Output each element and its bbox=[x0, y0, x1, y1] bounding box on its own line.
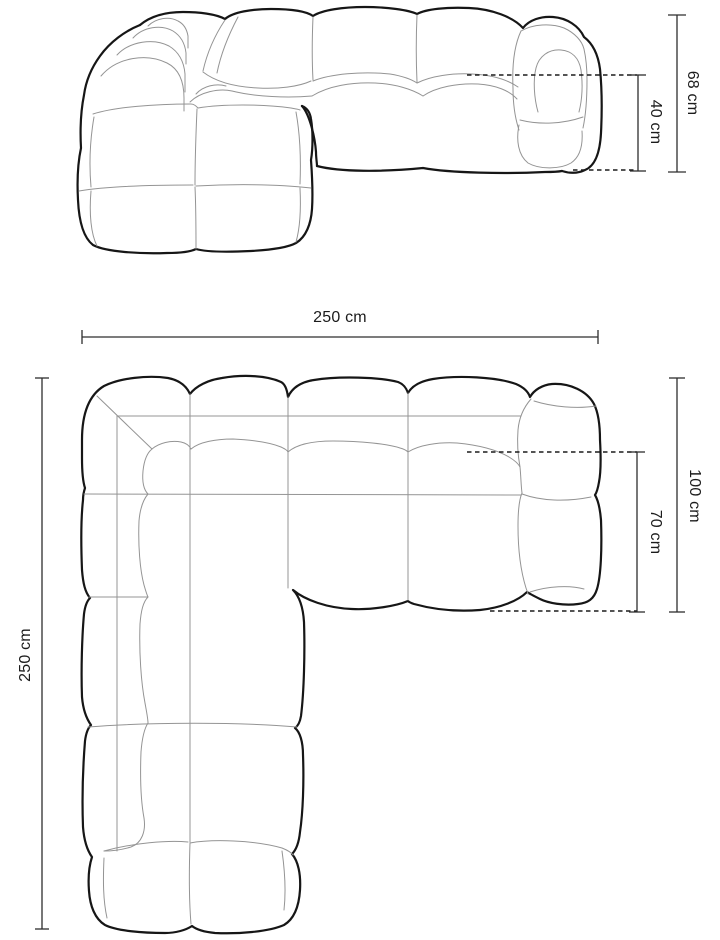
dimension-label-width: 250 cm bbox=[313, 309, 367, 326]
corner-cushion-arc bbox=[133, 27, 186, 64]
left-cushion-front-seam bbox=[143, 449, 152, 494]
armrest-waist-seam bbox=[522, 494, 591, 500]
end-module-top-seam bbox=[190, 841, 293, 855]
armrest-waist-seam bbox=[520, 117, 583, 123]
sofa-dimension-diagram: 68 cm 40 cm bbox=[0, 0, 720, 940]
dimension-label-right-section-depth: 100 cm bbox=[686, 469, 703, 523]
sofa-left-silhouette-and-front-module bbox=[78, 25, 313, 253]
front-view-drawing bbox=[78, 7, 602, 253]
corner-cushion-arc bbox=[101, 58, 184, 111]
back-cushion-front-seam bbox=[408, 443, 520, 467]
corner-module-join-seam bbox=[217, 17, 238, 73]
sofa-back-and-arm-outline bbox=[140, 7, 602, 173]
armrest-bottom-seam bbox=[530, 587, 584, 592]
corner-module-join-seam bbox=[203, 20, 225, 71]
armrest-inner-edge bbox=[520, 467, 522, 493]
front-module-side-seam bbox=[90, 191, 97, 246]
front-module-side-seam bbox=[90, 117, 94, 187]
back-module-seam bbox=[312, 17, 313, 80]
left-cushion-front-seam bbox=[104, 723, 148, 851]
left-cushion-front-seam bbox=[139, 494, 148, 597]
seat-cushion-top-seam bbox=[312, 83, 423, 96]
plan-view-dimensions: 250 cm 250 cm 100 cm 70 cm bbox=[17, 309, 703, 929]
front-module-center-seam bbox=[195, 109, 197, 185]
corner-cushion-arc bbox=[117, 42, 185, 92]
corner-seat-cushion-arc bbox=[196, 85, 226, 94]
sofa-plan-outline bbox=[81, 376, 601, 933]
front-module-top-seam bbox=[93, 104, 198, 114]
armrest-inner-seam bbox=[513, 31, 521, 130]
front-module-side-seam bbox=[296, 188, 300, 242]
sofa-seat-front-edge bbox=[317, 166, 562, 173]
armrest-inner-panel-seam bbox=[534, 50, 582, 112]
back-cushion-front-seam bbox=[152, 441, 191, 449]
back-cushion-bottom-seam bbox=[417, 74, 518, 87]
armrest-top-seam bbox=[534, 401, 596, 407]
armrest-inner-seam bbox=[521, 25, 587, 128]
back-module-seam bbox=[416, 15, 417, 82]
seat-cushion-top-seam bbox=[423, 84, 517, 99]
armrest-inner-edge bbox=[518, 399, 531, 467]
module-seam bbox=[88, 723, 297, 727]
back-cushion-front-seam bbox=[191, 439, 288, 452]
front-module-mid-seam bbox=[79, 185, 193, 191]
front-module-center-seam bbox=[195, 187, 196, 249]
back-cushion-front-seam bbox=[288, 441, 408, 452]
back-cushion-bottom-seam bbox=[203, 72, 311, 88]
plan-view-drawing bbox=[81, 376, 601, 933]
end-module-center-seam bbox=[189, 843, 191, 924]
corner-cushion-arc bbox=[148, 18, 188, 48]
front-module-mid-seam bbox=[196, 185, 311, 188]
end-module-side-seam bbox=[103, 858, 107, 918]
dimension-label-seat-height: 40 cm bbox=[647, 100, 664, 145]
armrest-inner-edge bbox=[518, 493, 528, 594]
armrest-lower-puff-seam bbox=[518, 125, 582, 168]
left-cushion-front-seam bbox=[140, 597, 148, 723]
dimension-label-total-height: 68 cm bbox=[684, 71, 701, 116]
back-cushion-bottom-seam bbox=[313, 73, 417, 83]
dimension-label-seat-depth: 70 cm bbox=[647, 510, 664, 555]
seat-back-seam bbox=[84, 494, 521, 495]
end-module-side-seam bbox=[282, 851, 285, 910]
front-module-side-seam bbox=[296, 112, 300, 184]
front-module-top-seam bbox=[198, 105, 300, 110]
corner-seat-cushion-arc bbox=[190, 90, 232, 102]
front-view-dimensions: 68 cm 40 cm bbox=[467, 15, 701, 172]
diagram-canvas: 68 cm 40 cm bbox=[0, 0, 720, 940]
seat-cushion-top-seam bbox=[232, 91, 312, 97]
dimension-label-depth: 250 cm bbox=[17, 628, 34, 682]
corner-miter-seam bbox=[97, 396, 152, 449]
